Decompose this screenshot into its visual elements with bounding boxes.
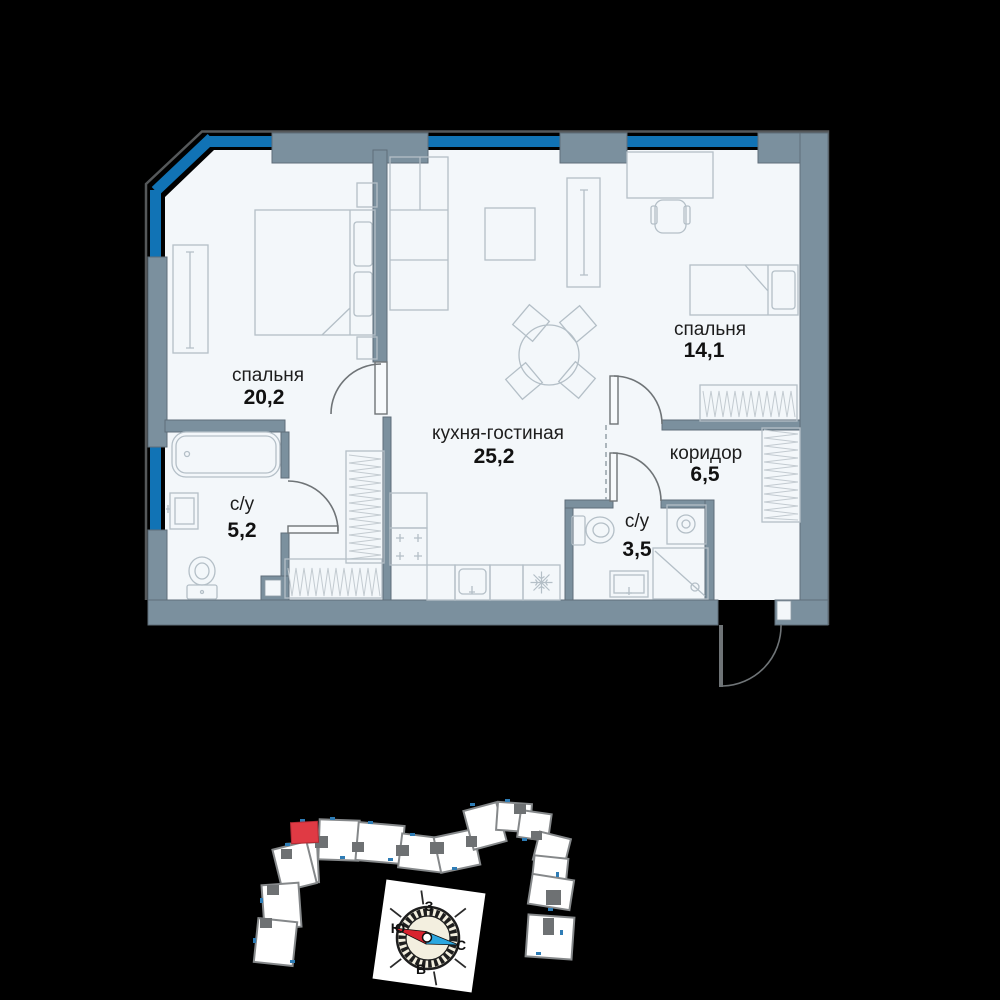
wall-right [800, 133, 828, 625]
bathroom1-door-leaf [288, 526, 338, 533]
floorplan-page: спальня 20,2 кухня-гостиная 25,2 спальня… [0, 0, 1000, 1000]
room-area-kitchen-living: 25,2 [474, 445, 515, 468]
room-label-bedroom-2: спальня [674, 319, 746, 340]
snowflake-icon [531, 572, 553, 594]
wall-bathroom2-top-left [565, 500, 613, 508]
compass-needle-pivot [423, 933, 432, 942]
wall-bathroom1-right-upper [281, 432, 289, 478]
compass-label-south: Ю [391, 920, 405, 936]
wall-bottom [148, 600, 718, 625]
room-area-corridor: 6,5 [690, 463, 720, 486]
room-label-bedroom-1: спальня [232, 365, 304, 386]
window-top-2 [428, 136, 560, 147]
wall-left-bottom [148, 530, 167, 600]
room-area-bathroom-1: 5,2 [227, 519, 256, 542]
highlighted-unit[interactable] [290, 821, 318, 843]
room-label-bathroom-2: с/у [625, 511, 650, 532]
wall-pier-top-2 [560, 133, 627, 163]
entrance-door-arc [723, 625, 781, 686]
window-left-1 [150, 190, 161, 257]
room-area-bathroom-2: 3,5 [622, 538, 652, 561]
compass-label-east: В [416, 961, 426, 977]
window-left-2 [150, 447, 161, 530]
wall-left-pier [148, 257, 167, 447]
room-area-bedroom-2: 14,1 [684, 339, 725, 362]
bathroom2-door-leaf [610, 453, 617, 501]
bedroom1-door-leaf [375, 362, 387, 414]
bedroom2-door-leaf [610, 376, 618, 424]
window-top-3 [627, 136, 758, 147]
apartment-floorplan: спальня 20,2 кухня-гостиная 25,2 спальня… [146, 132, 828, 688]
room-label-kitchen-living: кухня-гостиная [432, 423, 564, 444]
compass-label-west: З [425, 898, 434, 914]
wall-bathroom1-top [165, 420, 285, 432]
room-label-corridor: коридор [670, 443, 743, 464]
entrance-door-leaf [719, 625, 723, 687]
compass-label-north: С [456, 937, 466, 953]
duct-niche [265, 580, 281, 596]
entry-frame-notch [777, 601, 791, 620]
wall-bathroom2-left [565, 500, 573, 600]
room-area-bedroom-1: 20,2 [244, 386, 285, 409]
room-label-bathroom-1: с/у [230, 494, 255, 515]
compass: З Ю С В [373, 880, 486, 993]
wall-bathroom2-top-right [661, 500, 707, 508]
window-top-1 [209, 136, 272, 147]
wall-pier-top-1 [272, 133, 428, 163]
